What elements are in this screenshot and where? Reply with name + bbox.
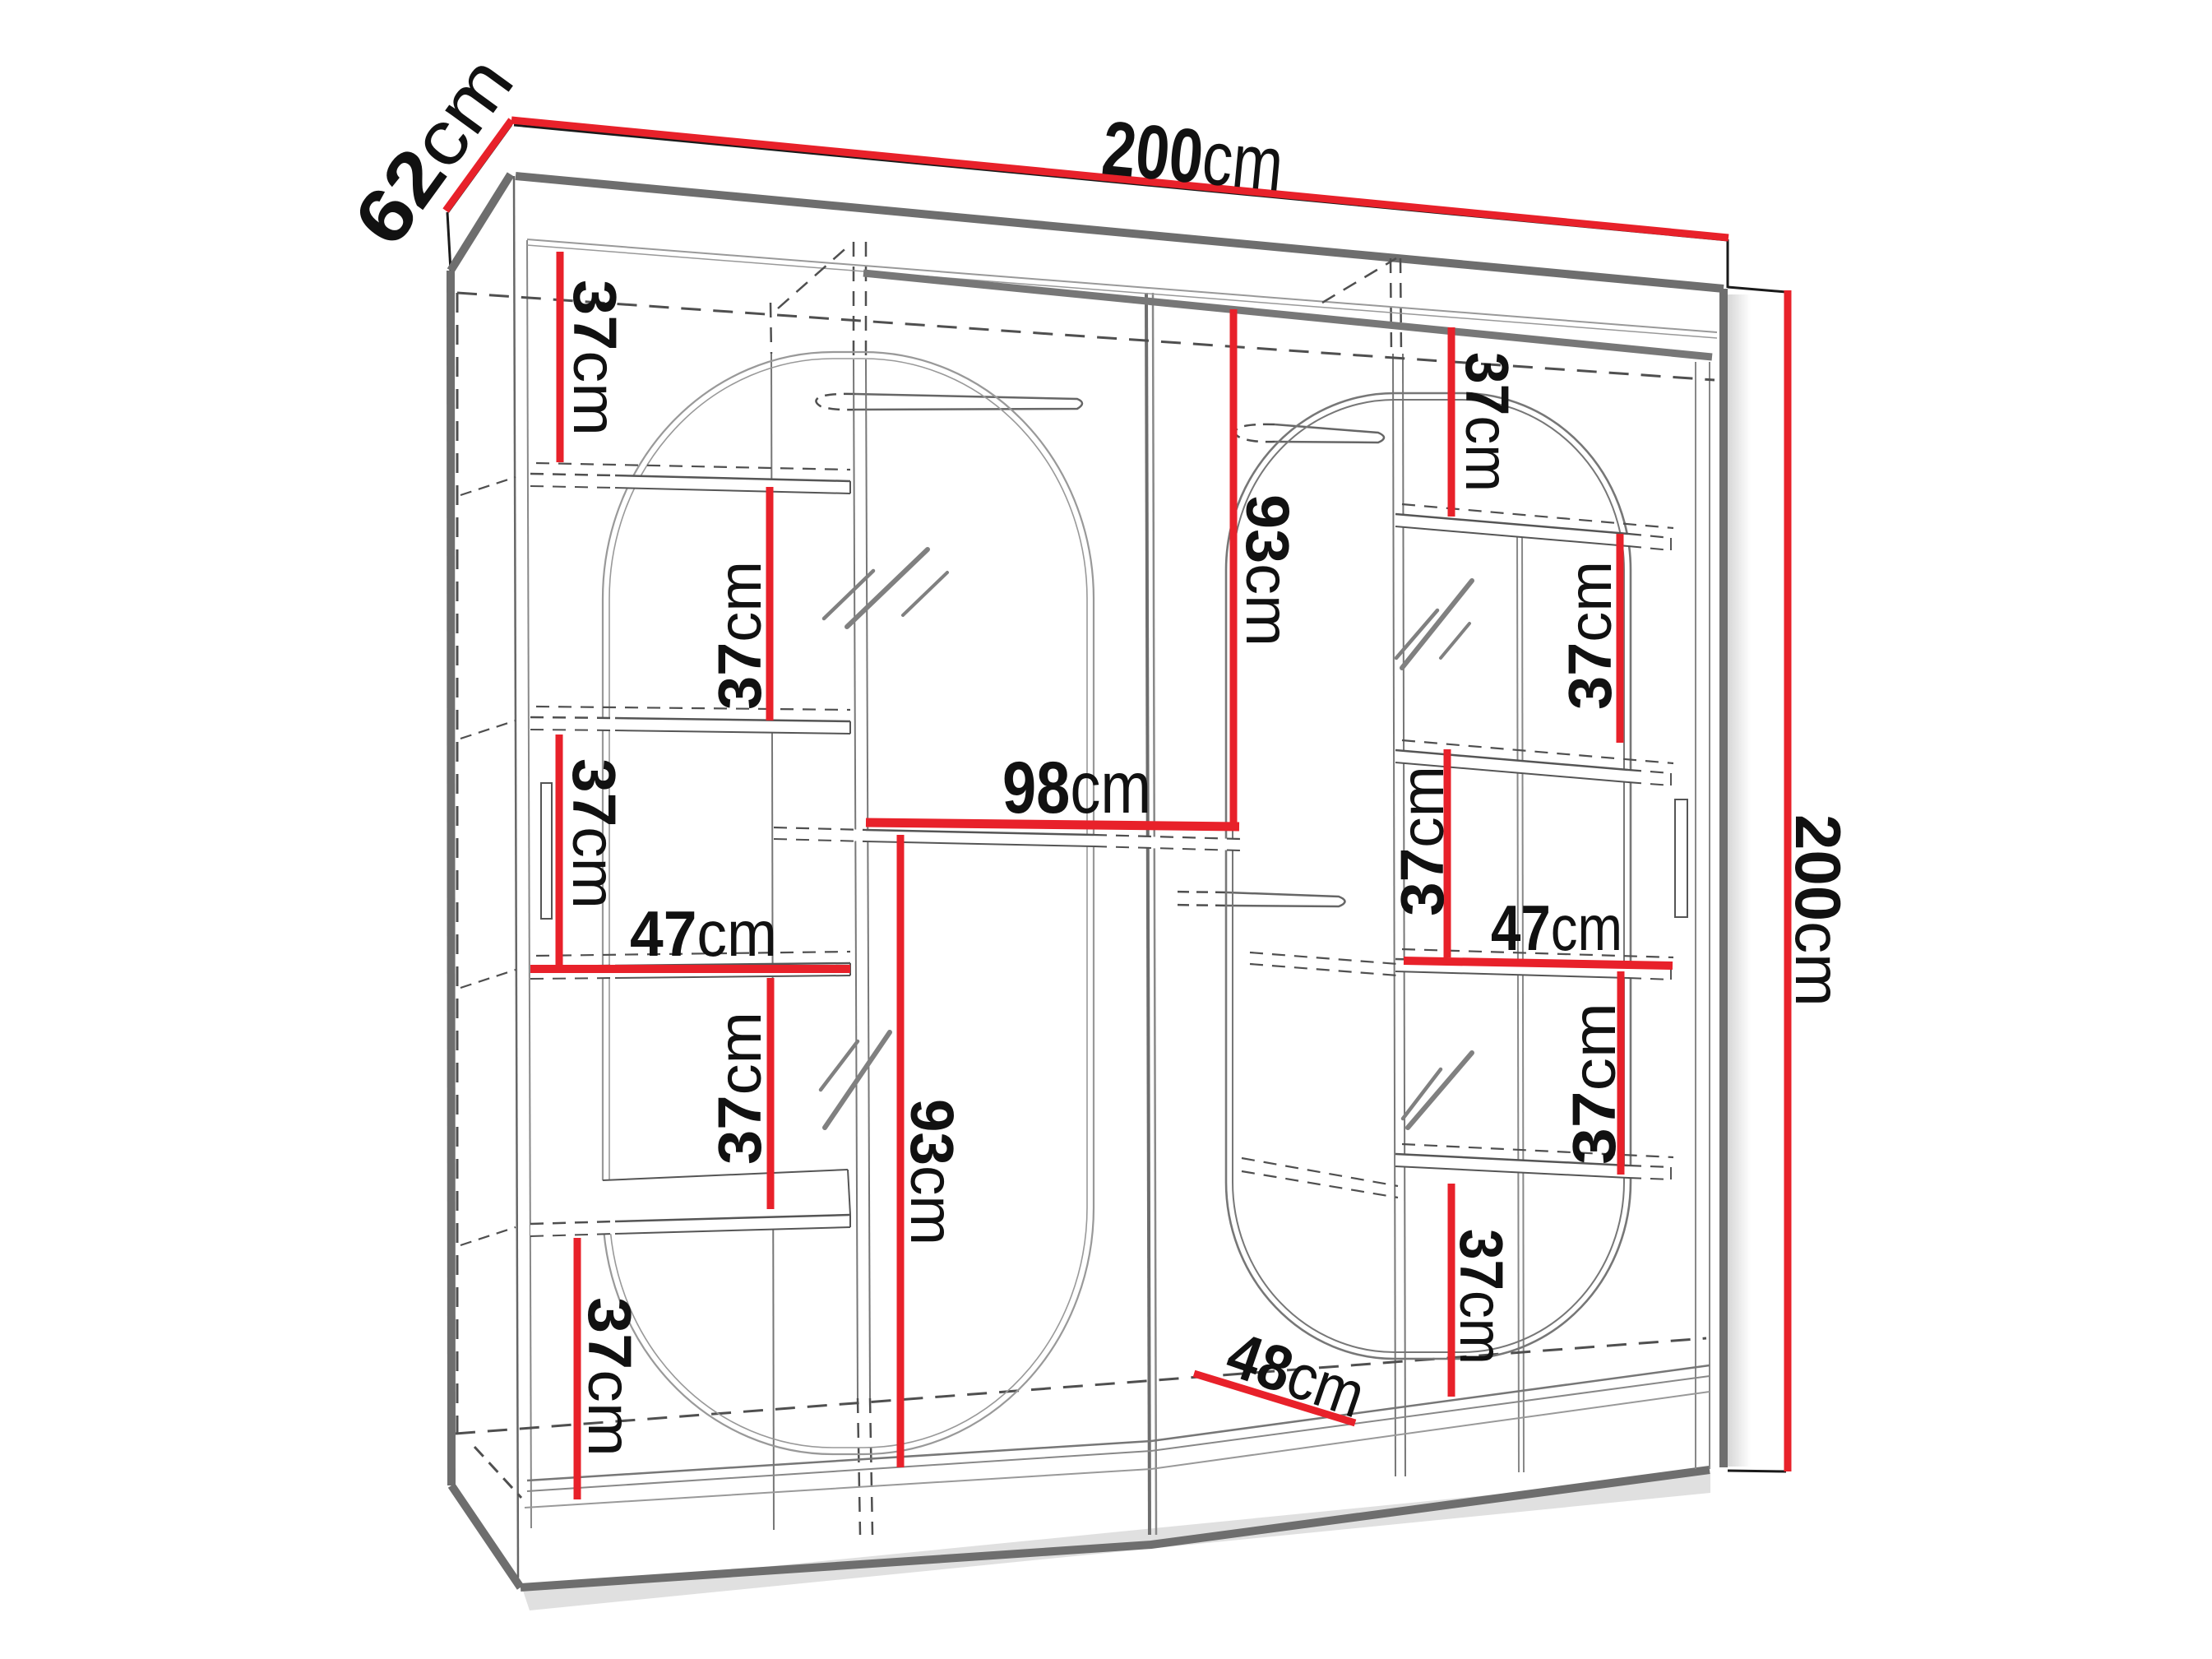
svg-text:200cm: 200cm (1782, 814, 1854, 1007)
svg-text:37cm: 37cm (560, 758, 628, 909)
svg-text:47cm: 47cm (1491, 892, 1622, 964)
svg-text:37cm: 37cm (1556, 561, 1624, 710)
svg-text:93cm: 93cm (898, 1099, 966, 1245)
svg-text:37cm: 37cm (1560, 1003, 1628, 1165)
svg-text:37cm: 37cm (1453, 352, 1521, 492)
svg-text:93cm: 93cm (1233, 494, 1302, 646)
svg-text:37cm: 37cm (706, 1012, 774, 1165)
svg-text:47cm: 47cm (630, 897, 777, 970)
svg-text:200cm: 200cm (1099, 104, 1287, 207)
svg-text:37cm: 37cm (1388, 766, 1456, 916)
svg-text:37cm: 37cm (1447, 1229, 1516, 1365)
svg-text:37cm: 37cm (576, 1297, 644, 1457)
svg-text:37cm: 37cm (561, 280, 629, 436)
svg-text:98cm: 98cm (1002, 746, 1151, 828)
svg-text:37cm: 37cm (706, 561, 774, 710)
